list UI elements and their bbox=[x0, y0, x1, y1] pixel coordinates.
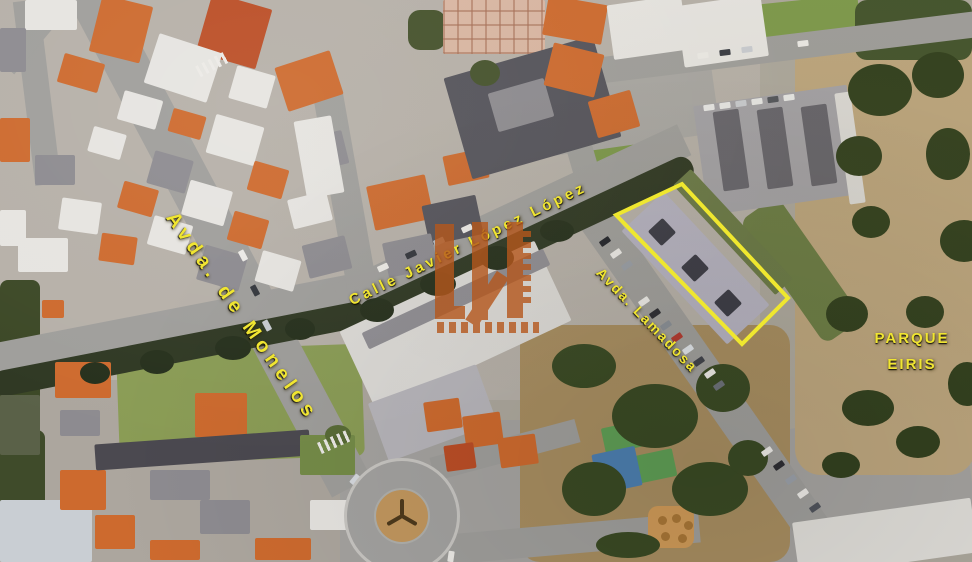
tree bbox=[612, 384, 698, 448]
tree bbox=[285, 318, 315, 340]
watermark-logo bbox=[429, 212, 555, 348]
building bbox=[60, 470, 106, 510]
tree bbox=[470, 60, 500, 86]
tree bbox=[596, 532, 660, 558]
playground-item bbox=[672, 514, 681, 523]
building bbox=[150, 470, 210, 500]
tree bbox=[822, 452, 860, 478]
building bbox=[443, 0, 545, 54]
terrain-zone bbox=[408, 10, 446, 50]
building bbox=[98, 233, 138, 266]
building bbox=[0, 118, 30, 162]
aerial-map: Avda. de Monelos Calle Javier López Lópe… bbox=[0, 0, 972, 562]
building bbox=[0, 395, 40, 455]
building bbox=[443, 442, 476, 472]
tree bbox=[562, 462, 626, 516]
tree bbox=[836, 136, 882, 176]
tree bbox=[896, 426, 940, 458]
building bbox=[423, 398, 463, 433]
park-label-line1: PARQUE bbox=[856, 326, 968, 352]
watermark-bar bbox=[507, 222, 523, 318]
building bbox=[18, 238, 68, 272]
building bbox=[676, 0, 769, 68]
tree bbox=[728, 440, 768, 476]
tree bbox=[696, 364, 750, 412]
monument bbox=[400, 499, 404, 516]
building bbox=[60, 410, 100, 436]
building bbox=[255, 538, 311, 560]
area-label-parque-eiris: PARQUE EIRIS bbox=[856, 326, 968, 378]
tree bbox=[852, 206, 890, 238]
watermark-bar bbox=[435, 306, 465, 319]
playground-item bbox=[678, 534, 687, 543]
building bbox=[42, 300, 64, 318]
building bbox=[150, 540, 200, 560]
playground-item bbox=[661, 532, 670, 541]
tree bbox=[912, 52, 964, 98]
building bbox=[497, 434, 539, 469]
playground-item bbox=[684, 521, 693, 530]
building bbox=[0, 28, 26, 72]
playground-item bbox=[658, 516, 667, 525]
building bbox=[200, 500, 250, 534]
watermark-bar bbox=[435, 224, 454, 318]
building bbox=[35, 155, 75, 185]
building bbox=[25, 0, 77, 30]
watermark-text-strip bbox=[437, 322, 539, 333]
tree bbox=[842, 390, 894, 426]
tree bbox=[926, 128, 970, 180]
building bbox=[195, 393, 247, 437]
tree bbox=[848, 64, 912, 116]
tree bbox=[552, 344, 616, 388]
tree bbox=[80, 362, 110, 384]
tree bbox=[140, 350, 174, 374]
park-label-line2: EIRIS bbox=[856, 352, 968, 378]
building bbox=[58, 197, 102, 234]
watermark-text-strip bbox=[522, 231, 531, 303]
tree bbox=[906, 296, 944, 328]
building bbox=[95, 515, 135, 549]
